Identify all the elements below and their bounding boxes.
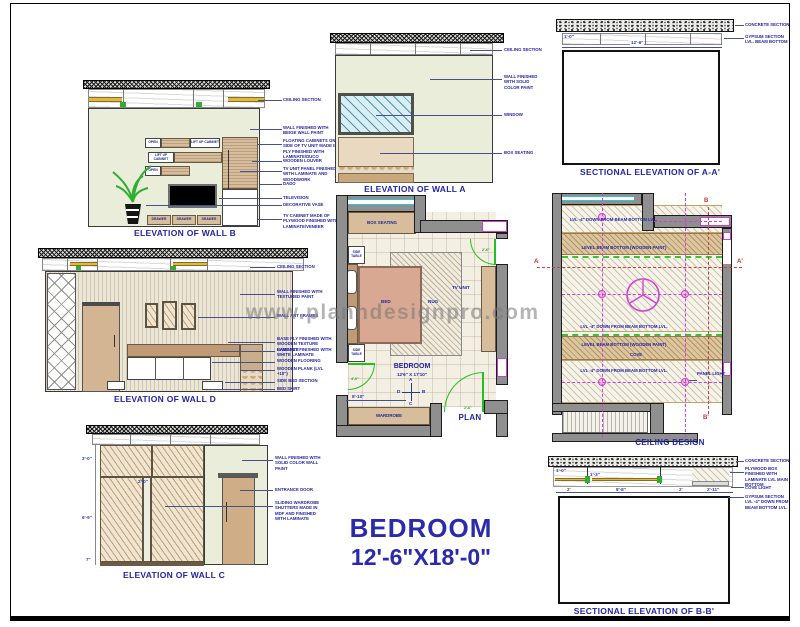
plan-door-bottom-label: 2'-6" <box>464 406 472 410</box>
wallc-annotation: ENTRANCE DOOR <box>275 487 327 492</box>
wallb-title: ELEVATION OF WALL B <box>110 228 260 238</box>
leader-line <box>258 219 282 220</box>
ceil-grid-line <box>685 193 686 437</box>
secbb-dim-line <box>556 492 733 493</box>
leader-line <box>470 50 502 51</box>
leader-line <box>736 461 744 462</box>
wallb-annotation: WALL FINISHED WITH BEIGE WALL PAINT <box>283 125 341 136</box>
walld-bed-base <box>107 381 125 390</box>
walld-cove-light <box>171 266 176 270</box>
ceil-grid-line <box>654 221 722 222</box>
walld-cove-light <box>76 266 81 270</box>
walld-mattress-divider <box>183 357 184 380</box>
ceil-wardrobe-stripes <box>562 411 648 433</box>
leader-line <box>240 490 273 491</box>
leader-line <box>258 100 282 101</box>
plan-door-bottom-leaf <box>482 372 484 412</box>
leader-line <box>728 497 744 498</box>
walld-annotation: WALL FINISHED WITH TEXTURED PAINT <box>277 289 332 300</box>
ceil-light-point <box>598 378 606 386</box>
leader-line <box>252 161 282 162</box>
ceil-marker-a: A <box>534 259 538 265</box>
ceil-wall-niche <box>723 232 731 240</box>
leader-line <box>225 382 275 383</box>
wallc-dim-bot: 7" <box>86 557 91 562</box>
secaa-concrete-slab <box>556 19 734 32</box>
plan-compass-s: C <box>409 401 412 406</box>
walld-bed-mattress <box>127 357 211 380</box>
plan-side-table: SIDE TABLE <box>348 344 365 362</box>
walla-box-seating <box>338 137 414 167</box>
walld-wall-art <box>145 303 158 328</box>
plan-compass-n: A <box>409 377 412 382</box>
leader-line <box>146 205 282 206</box>
plan-wall-right <box>496 412 508 437</box>
wallc-ceiling-slab <box>86 425 268 434</box>
ceil-light-point <box>681 290 689 298</box>
plan-room-label: BEDROOM <box>372 363 452 370</box>
plan-wall-right <box>496 233 508 239</box>
wallb-cabinet-box <box>174 152 222 163</box>
walla-seat-base <box>338 173 414 183</box>
main-title-size: 12'-6"X18'-0" <box>331 544 511 571</box>
plan-wall-niche <box>497 358 507 377</box>
secbb-dim-w1: 2' <box>566 487 572 492</box>
plan-wall-left <box>336 195 348 363</box>
secbb-annotation: COVE LIGHT <box>745 485 791 490</box>
plan-dim-line <box>346 400 406 401</box>
wallc-annotation: SLIDING WARDROBE SHUTTERS MADE IN MDF AN… <box>275 500 327 521</box>
secaa-annotation: CONCRETE SECTION <box>745 22 791 27</box>
plan-shaft <box>482 221 507 232</box>
secbb-dim-w2: 8'-8" <box>615 487 627 492</box>
plan-tv-unit-label: TV UNIT <box>452 285 470 290</box>
walld-annotation: CEILING SECTION <box>277 264 332 269</box>
plan-door-left-label: 4'-0" <box>351 377 359 381</box>
wallc-door-handle <box>226 502 227 522</box>
wallc-gypsum-divider <box>210 434 211 445</box>
leader-line <box>228 342 275 343</box>
wallb-cabinet-box <box>161 138 190 148</box>
wallc-dim-top: 2'-0" <box>82 456 92 461</box>
plan-door-right-label: 2'-6" <box>482 248 490 252</box>
wallc-gypsum-divider <box>170 434 171 445</box>
plan-wall-bottom <box>336 425 436 437</box>
wallb-annotation: TV CABINET MADE OF PLYWOOD FINISHED WITH… <box>283 213 341 229</box>
wallc-annotation: WALL FINISHED WITH SOLID COLOR WALL PAIN… <box>275 455 327 471</box>
secaa-annotation: GYPSUM SECTION LVL. BEAM BOTTOM <box>745 34 791 45</box>
plan-compass-ns <box>411 383 412 401</box>
ceil-grid-line <box>562 382 722 383</box>
wallb-ceiling-slab <box>83 80 270 89</box>
wallb-annotation: TV UNIT PANEL FINISHED WITH LAMINATE AND… <box>283 166 341 182</box>
walla-annotation: CEILING SECTION <box>504 47 544 52</box>
walld-title: ELEVATION OF WALL D <box>95 394 235 404</box>
ceil-marker-b: B <box>704 198 708 204</box>
ceil-door-gap <box>723 240 731 264</box>
walld-door-handle <box>114 335 115 347</box>
plan-compass-w: D <box>397 389 400 394</box>
walld-annotation: BED SKIRT <box>277 386 332 391</box>
leader-line <box>724 38 744 39</box>
leader-line <box>735 25 744 26</box>
walla-window <box>338 93 414 135</box>
ceil-panel-light-label: PANEL LIGHT <box>697 371 729 376</box>
secbb-annotation: CONCRETE SECTION <box>745 458 791 463</box>
walla-gypsum-band <box>335 43 493 55</box>
wallc-title: ELEVATION OF WALL C <box>104 570 244 580</box>
secbb-concrete-slab <box>548 456 738 467</box>
ceil-wall-step <box>642 193 654 231</box>
ceiling-fan-icon <box>625 277 661 313</box>
walld-cove-strip <box>70 262 97 266</box>
wallc-dim-line <box>95 445 96 565</box>
plan-dim-bottom: 8'-10" <box>352 394 364 399</box>
walld-vase-texture <box>241 370 262 391</box>
secbb-cove-strip <box>555 478 585 481</box>
secbb-cove-shelf <box>692 481 729 486</box>
plan-compass-e: B <box>422 389 425 394</box>
ceil-lvl-note: LVL -4" DOWN FROM BEAM BOTTOM LVL. <box>574 324 674 329</box>
secbb-gypsum-slope <box>692 468 729 481</box>
leader-line <box>240 171 282 172</box>
walld-gypsum-divider <box>97 258 98 271</box>
ceil-window <box>560 196 634 201</box>
leader-line <box>250 267 275 268</box>
ceil-wall-left <box>552 193 562 415</box>
drawing-sheet: OPEN LIFT UP CABINET LIFT UP CABINET OPE… <box>0 0 800 627</box>
walld-ceiling-slab <box>38 248 308 258</box>
walld-annotation: WOODEN FLOORING <box>277 358 332 363</box>
watermark: www.planndesignpro.com <box>246 301 540 325</box>
ceil-grid-line <box>602 193 603 437</box>
wallc-gypsum-divider <box>130 434 131 445</box>
wallb-cove-strip <box>89 97 122 102</box>
wallc-wardrobe-stile <box>143 477 151 562</box>
ceil-section-line-aa <box>537 267 742 268</box>
wallc-dim-mid: 6'-9" <box>82 515 92 520</box>
wallb-annotation: CEILING SECTION <box>283 97 341 102</box>
wallc-wardrobe-shutter <box>100 477 143 562</box>
plan-window <box>344 199 414 205</box>
walld-wall-art <box>181 303 196 330</box>
plan-box-seating: BOX SEATING <box>348 212 416 234</box>
wallb-drawer: DRAWER <box>197 215 221 225</box>
secaa-height-dim: 1'-0" <box>564 34 574 39</box>
wallb-drawer: DRAWER <box>172 215 196 225</box>
walla-title: ELEVATION OF WALL A <box>355 184 475 194</box>
ceil-light-point <box>598 290 606 298</box>
secaa-dim-line <box>562 47 722 48</box>
plan-title: PLAN <box>450 413 490 422</box>
ceil-marker-b2: B' <box>703 415 709 421</box>
ceil-title: CEILING DESIGN <box>615 438 725 447</box>
wallb-gypsum-divider <box>223 89 224 108</box>
secbb-dim-h2: 1'-3" <box>590 472 600 477</box>
plan-wall-bottom-step <box>430 403 442 437</box>
leader-line <box>240 370 275 371</box>
plan-wall-bottom-right <box>484 400 508 414</box>
wallc-loft-shutter <box>152 445 204 477</box>
walld-gypsum-divider <box>67 258 68 271</box>
secbb-cove-light <box>585 476 590 483</box>
walla-annotation: WINDOW <box>504 112 544 117</box>
leader-line <box>240 294 275 295</box>
leader-line <box>376 115 502 116</box>
leader-line <box>219 198 282 199</box>
leader-line <box>430 79 502 80</box>
leader-line <box>250 129 282 130</box>
ceil-wall-bottom <box>552 403 662 412</box>
leader-line <box>730 472 744 473</box>
wallb-gypsum-divider <box>193 89 194 108</box>
walla-ceiling-slab <box>330 33 504 43</box>
walla-gypsum-divider <box>370 43 371 55</box>
ceil-light-point <box>681 378 689 386</box>
ceil-section-line-bb <box>708 207 709 414</box>
wallb-annotation: WOODEN LOUVER <box>283 158 341 163</box>
walla-annotation: BOX SEATING <box>504 150 544 155</box>
secaa-gypsum-divider <box>600 33 601 45</box>
walld-annotation: BASE PLY FINISHED WITH WHITE LAMINATE <box>277 347 332 358</box>
walla-gypsum-divider <box>460 43 461 55</box>
leader-line <box>380 153 502 154</box>
wallb-annotation: FLOATING CABINETS ON SIDE OF TV UNIT MAD… <box>283 138 341 159</box>
wallc-dim-inner: 2'-0" <box>138 479 148 484</box>
secaa-width-dim: 12'-6" <box>630 40 644 45</box>
sheet-border-bottom <box>10 616 790 621</box>
secaa-gypsum-divider <box>690 33 691 45</box>
wallc-gypsum-band <box>92 434 260 445</box>
leader-line <box>220 351 275 352</box>
wallb-annotation: TELEVISION <box>283 195 341 200</box>
leader-line <box>731 487 744 488</box>
leader-line <box>165 506 273 507</box>
leader-line <box>242 460 273 461</box>
wallb-lower-cabinet <box>222 189 258 226</box>
walla-gypsum-divider <box>415 43 416 55</box>
walld-wardrobe-section <box>47 273 76 390</box>
wallc-loft-shutter <box>100 445 152 477</box>
secbb-cove-strip <box>592 478 658 481</box>
walld-gypsum-divider <box>207 258 208 271</box>
walla-annotation: WALL FINISHED WITH SOLID COLOR PAINT <box>504 74 544 90</box>
main-title: BEDROOM 12'-6"X18'-0" <box>331 513 511 571</box>
walld-annotation: SIDE BED SECTION <box>277 378 332 383</box>
plan-wardrobe: WARDROBE <box>348 407 430 425</box>
plan-side-table: SIDE TABLE <box>348 246 365 264</box>
leader-line <box>689 380 697 381</box>
wallb-cove-light <box>120 102 126 107</box>
plant-icon <box>110 160 156 226</box>
secbb-cove-light <box>657 476 662 483</box>
wallb-annotation: DADO <box>283 181 341 186</box>
wallb-liftup-cabinet: LIFT UP CABINET <box>190 138 220 148</box>
secbb-dim-w4: 2'-11" <box>706 487 720 492</box>
leader-line <box>212 362 275 363</box>
leader-line <box>208 389 275 390</box>
ceil-beam-note: LEVEL BEAM BOTTOM (WOODEN PAINT) <box>574 342 674 347</box>
ceil-lvl-note: LVL -4" DOWN FROM BEAM BOTTOM LVL. <box>574 368 674 373</box>
secaa-gypsum-divider <box>645 33 646 45</box>
secbb-annotation: GYPSUM SECTION LVL -4" DOWN FROM BEAM BO… <box>745 494 791 510</box>
wallc-wardrobe-shutter <box>151 477 204 562</box>
main-title-room: BEDROOM <box>331 513 511 544</box>
walld-annotation: WOODEN PLANK (LVL +10") <box>277 366 332 377</box>
ceil-beam-note: LEVEL BEAM BOTTOM (WOODEN PAINT) <box>574 245 674 250</box>
wallb-cabinet-handle <box>228 150 229 190</box>
plan-door-left-leaf <box>348 363 375 365</box>
ceil-band-beam1 <box>562 233 722 255</box>
walld-door <box>82 302 120 392</box>
wallb-cove-light <box>196 102 202 107</box>
ceil-cove-label: COVE <box>630 352 650 357</box>
secaa-title: SECTIONAL ELEVATION OF A-A' <box>580 167 715 177</box>
secaa-section-box <box>562 50 720 165</box>
secbb-title: SECTIONAL ELEVATION OF B-B' <box>558 606 730 616</box>
wallb-cabinet-box <box>161 166 190 176</box>
plan-door-right-leaf <box>494 239 496 265</box>
leader-line <box>258 144 282 145</box>
ceil-lvl-note: LVL -4" DOWN FROM BEAM BOTTOM LVL. <box>566 217 661 222</box>
ceil-marker-a2: A' <box>737 259 743 265</box>
walld-wall-art <box>162 301 177 330</box>
leader-line <box>260 184 282 185</box>
walld-cove-strip <box>173 262 207 266</box>
wallb-annotation: DECORATIVE VASE <box>283 202 341 207</box>
walld-mattress-divider <box>155 357 156 380</box>
secbb-dim-h1: 1'-0" <box>556 468 566 473</box>
wallb-open-shelf: OPEN <box>145 138 161 148</box>
wallc-wardrobe-base <box>100 562 204 566</box>
secbb-section-box <box>558 496 730 604</box>
secbb-dim-w3: 2' <box>678 487 684 492</box>
